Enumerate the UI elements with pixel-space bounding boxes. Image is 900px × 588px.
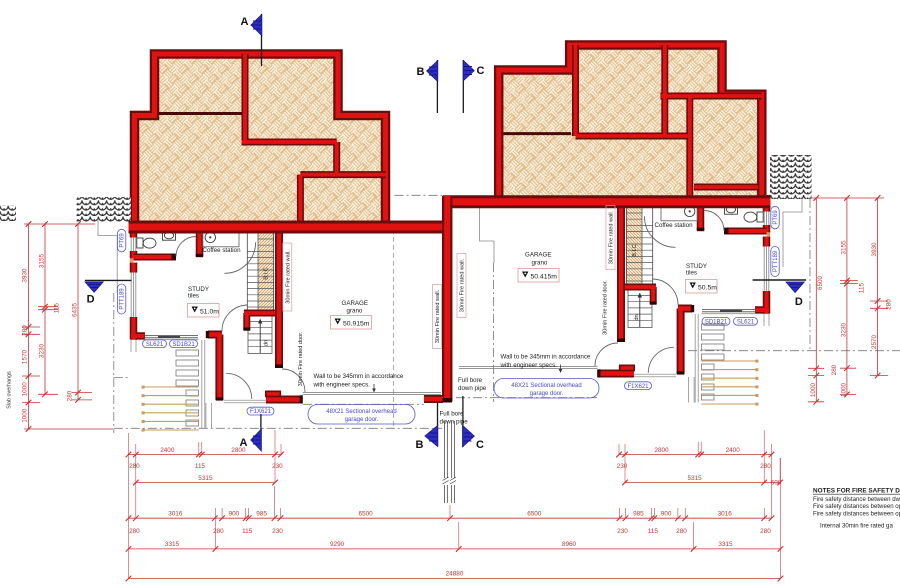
svg-text:5315: 5315 [198, 475, 213, 482]
svg-text:3315: 3315 [165, 541, 180, 548]
svg-text:1000: 1000 [810, 382, 817, 397]
svg-text:24880: 24880 [446, 571, 464, 578]
svg-text:985: 985 [633, 511, 644, 518]
svg-text:115: 115 [54, 303, 61, 314]
svg-text:Full bore: Full bore [440, 411, 465, 418]
svg-text:280: 280 [67, 390, 74, 401]
svg-text:600: 600 [771, 480, 782, 487]
svg-text:GARAGE: GARAGE [525, 252, 551, 259]
svg-text:30min Fire rated door.: 30min Fire rated door. [603, 280, 609, 335]
svg-text:5315: 5315 [687, 475, 702, 482]
svg-text:garage door.: garage door. [345, 417, 379, 423]
svg-text:280: 280 [676, 528, 687, 535]
svg-text:30min Fire rated wall.: 30min Fire rated wall. [435, 289, 441, 343]
svg-text:2800: 2800 [654, 447, 669, 454]
svg-text:280: 280 [886, 299, 893, 310]
svg-text:dn: dn [264, 340, 270, 346]
svg-text:SL621: SL621 [737, 319, 755, 325]
svg-text:30min Fire rated wall.: 30min Fire rated wall. [285, 250, 291, 304]
svg-text:B.I.C: B.I.C [632, 244, 638, 256]
svg-text:30min Fire rated wall.: 30min Fire rated wall. [609, 210, 615, 264]
svg-text:48X21 Sectional overhead: 48X21 Sectional overhead [326, 409, 396, 415]
svg-text:grano: grano [532, 260, 548, 267]
svg-text:PTT189: PTT189 [773, 250, 779, 272]
svg-text:grano: grano [347, 308, 363, 315]
svg-text:F1X621: F1X621 [627, 384, 649, 390]
svg-text:Coffee station: Coffee station [203, 247, 242, 254]
svg-text:Fire safety distance between d: Fire safety distance between dwellings t… [813, 496, 900, 503]
svg-text:SD1B21: SD1B21 [705, 319, 728, 325]
svg-text:C: C [476, 439, 484, 451]
svg-text:280: 280 [129, 463, 140, 470]
svg-text:with engineer specs.: with engineer specs. [500, 362, 558, 369]
svg-text:down pipe: down pipe [440, 419, 469, 426]
svg-text:GARAGE: GARAGE [342, 300, 368, 307]
svg-text:1000: 1000 [22, 408, 29, 423]
svg-text:30min Fire rated wall.: 30min Fire rated wall. [460, 258, 466, 312]
svg-text:8960: 8960 [562, 541, 577, 548]
svg-text:115: 115 [859, 282, 866, 293]
svg-text:280: 280 [831, 364, 838, 375]
svg-text:down pipe: down pipe [458, 385, 487, 392]
svg-text:Coffee station: Coffee station [655, 222, 694, 229]
svg-text:Wall to be 345mm in accordance: Wall to be 345mm in accordance [314, 373, 404, 380]
svg-text:tiles: tiles [188, 293, 199, 300]
svg-text:3016: 3016 [718, 511, 733, 518]
svg-text:A: A [241, 16, 249, 28]
svg-text:2400: 2400 [160, 447, 175, 454]
svg-text:230: 230 [272, 528, 283, 535]
svg-text:B: B [416, 439, 424, 451]
svg-text:1570: 1570 [22, 349, 29, 364]
svg-text:PT69: PT69 [120, 233, 126, 248]
svg-text:3930: 3930 [22, 268, 29, 283]
svg-text:900: 900 [661, 511, 672, 518]
svg-text:280: 280 [760, 528, 771, 535]
svg-text:B.I.C: B.I.C [264, 267, 270, 279]
svg-text:3315: 3315 [718, 541, 733, 548]
svg-text:Wall to be 345mm in accordance: Wall to be 345mm in accordance [501, 354, 591, 361]
svg-text:D: D [795, 296, 803, 308]
svg-text:900: 900 [229, 511, 240, 518]
svg-text:1000: 1000 [841, 382, 848, 397]
svg-text:garage door.: garage door. [530, 391, 564, 397]
svg-text:3155: 3155 [841, 240, 848, 255]
svg-text:51.0m: 51.0m [200, 309, 219, 316]
svg-text:230: 230 [617, 528, 628, 535]
svg-text:9290: 9290 [330, 541, 345, 548]
svg-text:985: 985 [256, 511, 267, 518]
svg-text:Slab overhangs: Slab overhangs [7, 371, 13, 409]
svg-text:NOTES FOR FIRE SAFETY DESIGN: NOTES FOR FIRE SAFETY DESIGN [813, 488, 900, 495]
svg-text:SL621: SL621 [146, 342, 164, 348]
svg-text:dn: dn [634, 314, 640, 320]
svg-text:Fire safety distances between: Fire safety distances between openings a [813, 503, 900, 510]
svg-text:280: 280 [22, 325, 29, 336]
svg-text:50.415m: 50.415m [531, 274, 558, 281]
svg-text:6500: 6500 [527, 511, 542, 518]
svg-text:6500: 6500 [817, 275, 824, 290]
svg-text:115: 115 [648, 528, 659, 535]
svg-text:3155: 3155 [39, 253, 46, 268]
svg-text:tiles: tiles [686, 270, 697, 277]
svg-text:115: 115 [195, 463, 206, 470]
svg-text:3930: 3930 [871, 242, 878, 257]
svg-text:C: C [477, 65, 485, 77]
svg-text:280: 280 [213, 528, 224, 535]
svg-text:50.5m: 50.5m [698, 285, 717, 292]
svg-text:3230: 3230 [841, 322, 848, 337]
svg-text:2800: 2800 [231, 447, 246, 454]
svg-text:115: 115 [242, 528, 253, 535]
svg-text:3016: 3016 [168, 511, 183, 518]
svg-text:230: 230 [272, 463, 283, 470]
svg-text:280: 280 [129, 528, 140, 535]
svg-text:Full bore: Full bore [458, 377, 483, 384]
svg-text:30min Fire rated door.: 30min Fire rated door. [298, 331, 304, 386]
svg-text:1000: 1000 [22, 382, 29, 397]
svg-text:Fire safety distances between: Fire safety distances between openings a [813, 511, 900, 518]
svg-text:50.915m: 50.915m [343, 321, 370, 328]
svg-text:Internal 30min fire rated ga: Internal 30min fire rated ga [820, 523, 893, 530]
svg-text:6500: 6500 [358, 511, 373, 518]
svg-text:PTT189: PTT189 [120, 288, 126, 310]
svg-text:with engineer specs.: with engineer specs. [313, 382, 371, 389]
svg-text:230: 230 [617, 463, 628, 470]
svg-text:SD1B21: SD1B21 [172, 342, 195, 348]
svg-text:280: 280 [760, 463, 771, 470]
svg-text:2570: 2570 [871, 334, 878, 349]
svg-text:D: D [87, 294, 95, 306]
svg-text:B: B [417, 66, 425, 78]
svg-text:6435: 6435 [72, 302, 79, 317]
svg-text:48X21 Sectional overhead: 48X21 Sectional overhead [511, 383, 581, 389]
svg-text:3230: 3230 [39, 343, 46, 358]
svg-text:PT69: PT69 [773, 210, 779, 225]
svg-text:2400: 2400 [726, 447, 741, 454]
